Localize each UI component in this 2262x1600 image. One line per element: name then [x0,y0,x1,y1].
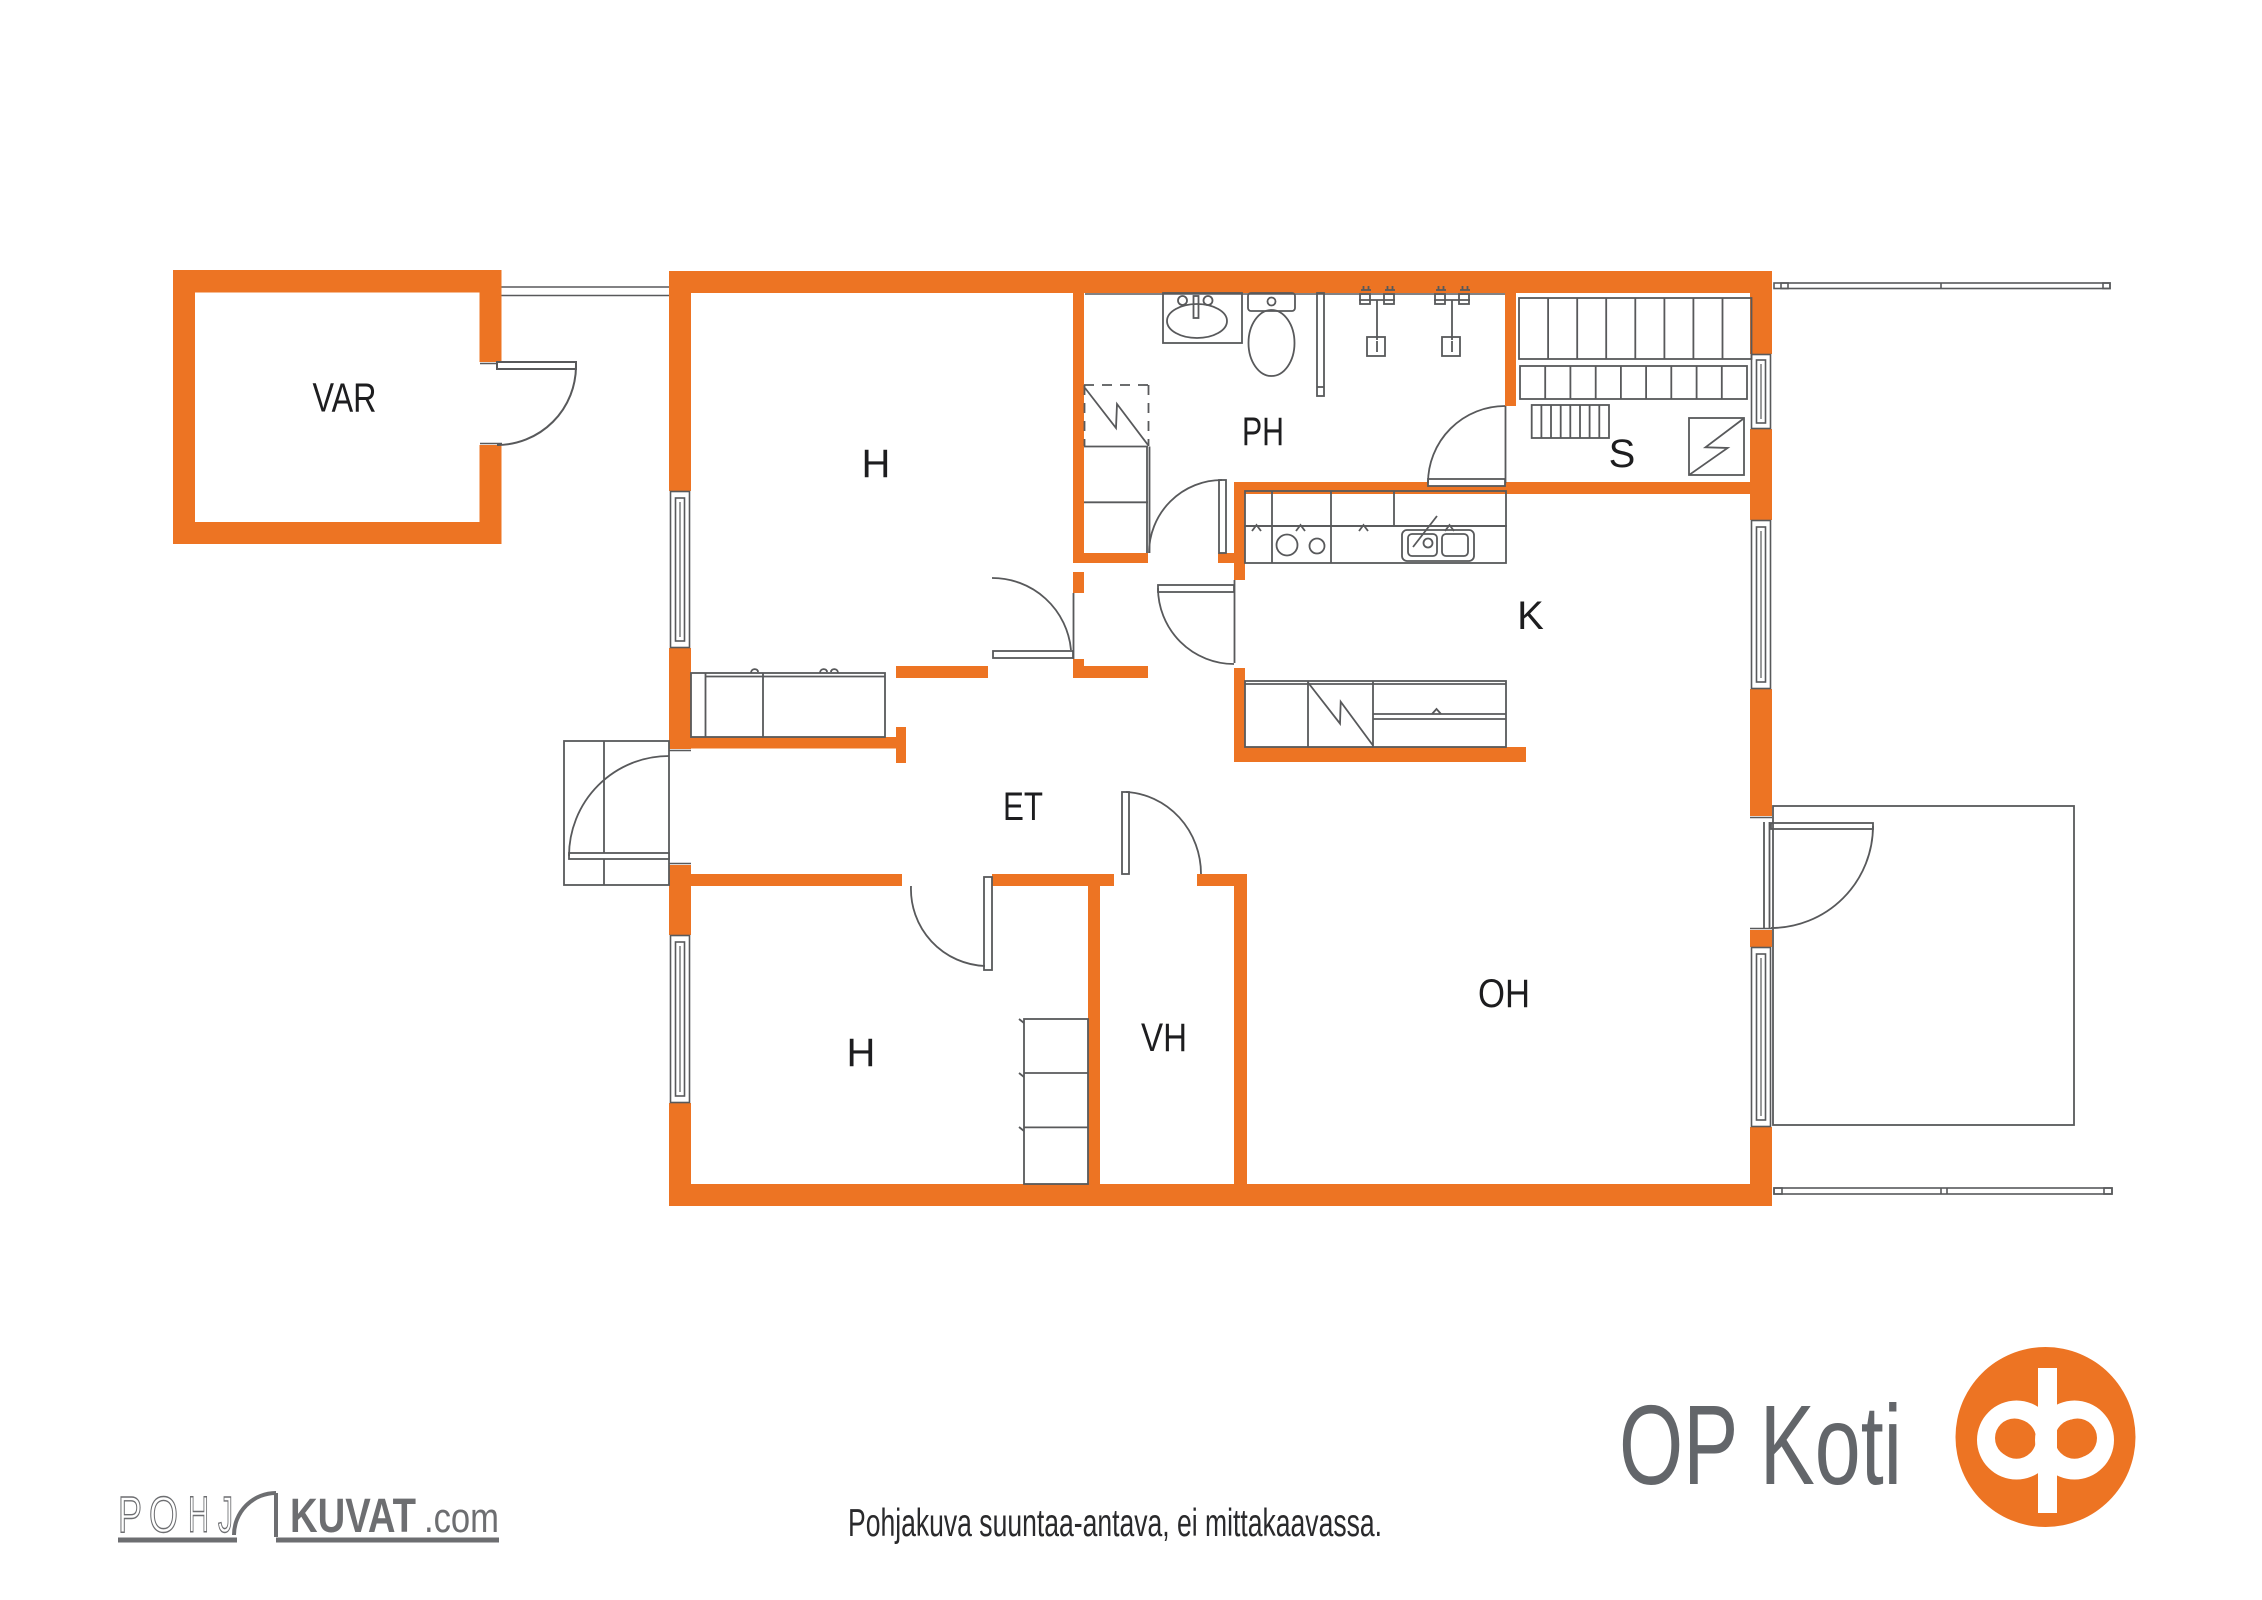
svg-text:O: O [149,1486,178,1543]
svg-text:OH: OH [1478,972,1530,1016]
svg-text:VH: VH [1141,1016,1187,1060]
svg-text:ET: ET [1003,785,1043,829]
svg-text:S: S [1609,432,1636,476]
svg-text:PH: PH [1242,410,1284,454]
svg-text:H: H [862,442,891,486]
svg-text:H: H [847,1031,876,1075]
svg-text:OP Koti: OP Koti [1619,1382,1902,1508]
svg-text:K: K [1517,594,1544,638]
svg-text:H: H [188,1486,209,1543]
svg-text:P: P [118,1486,142,1543]
svg-text:.com: .com [424,1494,499,1541]
svg-text:Pohjakuva suuntaa-antava, ei m: Pohjakuva suuntaa-antava, ei mittakaavas… [848,1502,1382,1545]
svg-text:J: J [218,1486,233,1543]
svg-text:KUVAT: KUVAT [290,1490,416,1543]
svg-text:VAR: VAR [313,375,377,421]
